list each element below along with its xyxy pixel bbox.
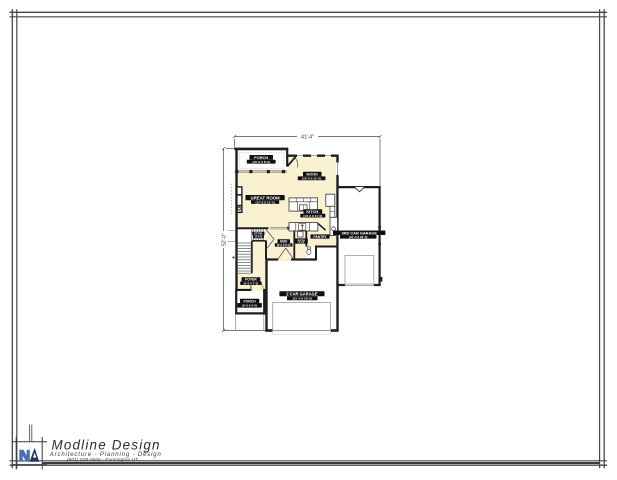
svg-text:(15'-0 X 6'-0): (15'-0 X 6'-0) bbox=[252, 160, 269, 164]
svg-text:PORCH: PORCH bbox=[243, 299, 256, 303]
svg-text:(13'-0 X 11'-0): (13'-0 X 11'-0) bbox=[303, 214, 322, 218]
svg-text:(801) 839-5668 - Farmington UT: (801) 839-5668 - Farmington UT bbox=[67, 457, 139, 462]
svg-text:(21'-4 X 19'-6): (21'-4 X 19'-6) bbox=[293, 297, 312, 301]
svg-text:(10'-4 X 23'-0): (10'-4 X 23'-0) bbox=[349, 235, 367, 239]
svg-text:MUD: MUD bbox=[280, 240, 288, 244]
svg-text:52'-0": 52'-0" bbox=[222, 233, 228, 246]
svg-text:PANTRY: PANTRY bbox=[313, 235, 327, 239]
svg-text:(8'-0 X 6'-0): (8'-0 X 6'-0) bbox=[242, 304, 257, 308]
svg-text:(4 X 6): (4 X 6) bbox=[255, 236, 262, 239]
svg-text:(8'-0 X 6'-0): (8'-0 X 6'-0) bbox=[277, 243, 291, 247]
svg-text:(13'-0 X 11'-0): (13'-0 X 11'-0) bbox=[302, 177, 321, 181]
svg-text:(5 X 8): (5 X 8) bbox=[299, 242, 305, 244]
svg-text:(17'-0 X 15'-0): (17'-0 X 15'-0) bbox=[256, 200, 275, 204]
svg-text:STOR.: STOR. bbox=[254, 232, 263, 236]
svg-text:Modline Design: Modline Design bbox=[52, 437, 161, 452]
svg-text:41'-4": 41'-4" bbox=[301, 135, 314, 141]
svg-text:(9'-0 X 7'-0): (9'-0 X 7'-0) bbox=[244, 281, 259, 285]
